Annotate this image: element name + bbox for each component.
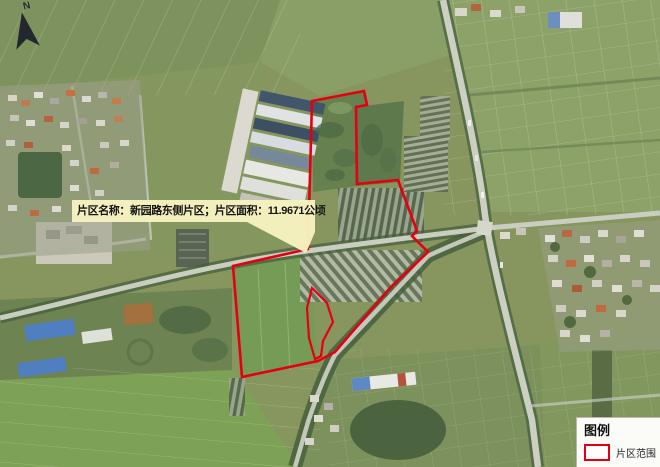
legend-title: 图例	[584, 423, 660, 438]
legend-panel: 图例 片区范围	[576, 417, 660, 467]
boundary-swatch-icon	[584, 444, 610, 461]
area-label-text: 片区名称：新园路东侧片区；片区面积：11.9671公顷	[77, 204, 313, 218]
north-arrow: N	[8, 0, 48, 54]
legend-item: 片区范围	[584, 444, 660, 461]
satellite-map: 片区名称：新园路东侧片区；片区面积：11.9671公顷 N 图例 片区范围	[0, 0, 660, 467]
village-west	[0, 80, 150, 258]
legend-item-label: 片区范围	[616, 445, 656, 460]
satellite-background	[0, 0, 660, 467]
north-arrow-icon	[8, 10, 42, 50]
